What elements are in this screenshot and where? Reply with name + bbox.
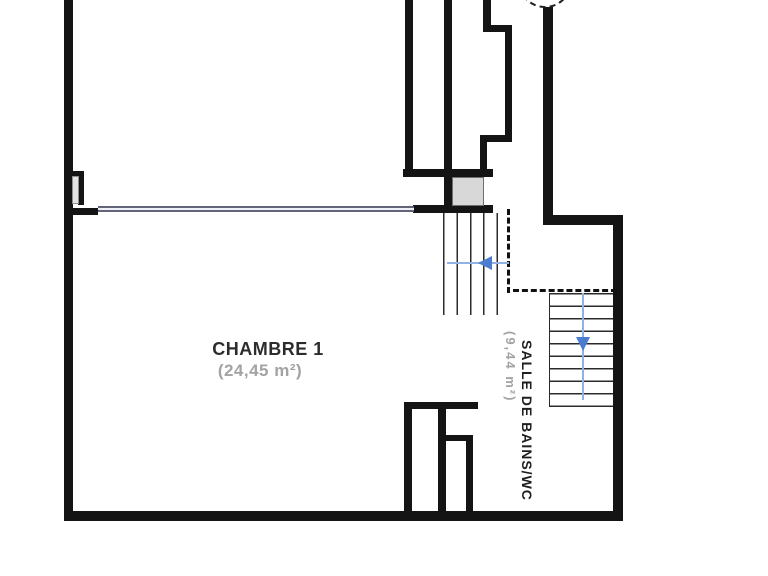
- stepped-wall-seg3: [505, 25, 512, 142]
- exterior-wall-upper-right: [543, 215, 623, 225]
- window: [98, 206, 414, 212]
- closet-wall-right: [466, 435, 473, 511]
- room-area-bathroom: (9,44 m²): [503, 331, 518, 461]
- partial-dashed-circle: [518, 0, 572, 8]
- exterior-wall-entry: [543, 7, 553, 217]
- exterior-wall-bottom: [64, 511, 623, 521]
- closet-wall-mid: [438, 402, 446, 511]
- exterior-wall-right: [613, 215, 623, 521]
- room-label-chambre: CHAMBRE 1: [178, 339, 358, 360]
- stairs-upper: [443, 213, 509, 315]
- stepped-wall-seg5: [480, 135, 487, 177]
- closet-wall-left: [404, 402, 412, 511]
- room-label-bathroom: SALLE DE BAINS/WC: [519, 340, 535, 510]
- interior-wall-b: [444, 0, 452, 213]
- stair-landing-step: [452, 177, 484, 206]
- floor-plan: CHAMBRE 1 (24,45 m²) (9,44 m²) SALLE DE …: [0, 0, 768, 576]
- wall-stub-left: [73, 208, 98, 215]
- dashed-opening-line-vertical: [507, 209, 510, 293]
- interior-wall-cross-lower: [413, 205, 493, 213]
- dashed-opening-line-horizontal: [513, 289, 617, 292]
- radiator-symbol: [72, 176, 79, 204]
- stair-arrow-down-icon: [576, 337, 590, 351]
- exterior-wall-left: [64, 0, 73, 521]
- room-area-chambre: (24,45 m²): [170, 361, 350, 381]
- interior-wall-a: [405, 0, 413, 175]
- stair-arrow-left-icon: [478, 256, 492, 270]
